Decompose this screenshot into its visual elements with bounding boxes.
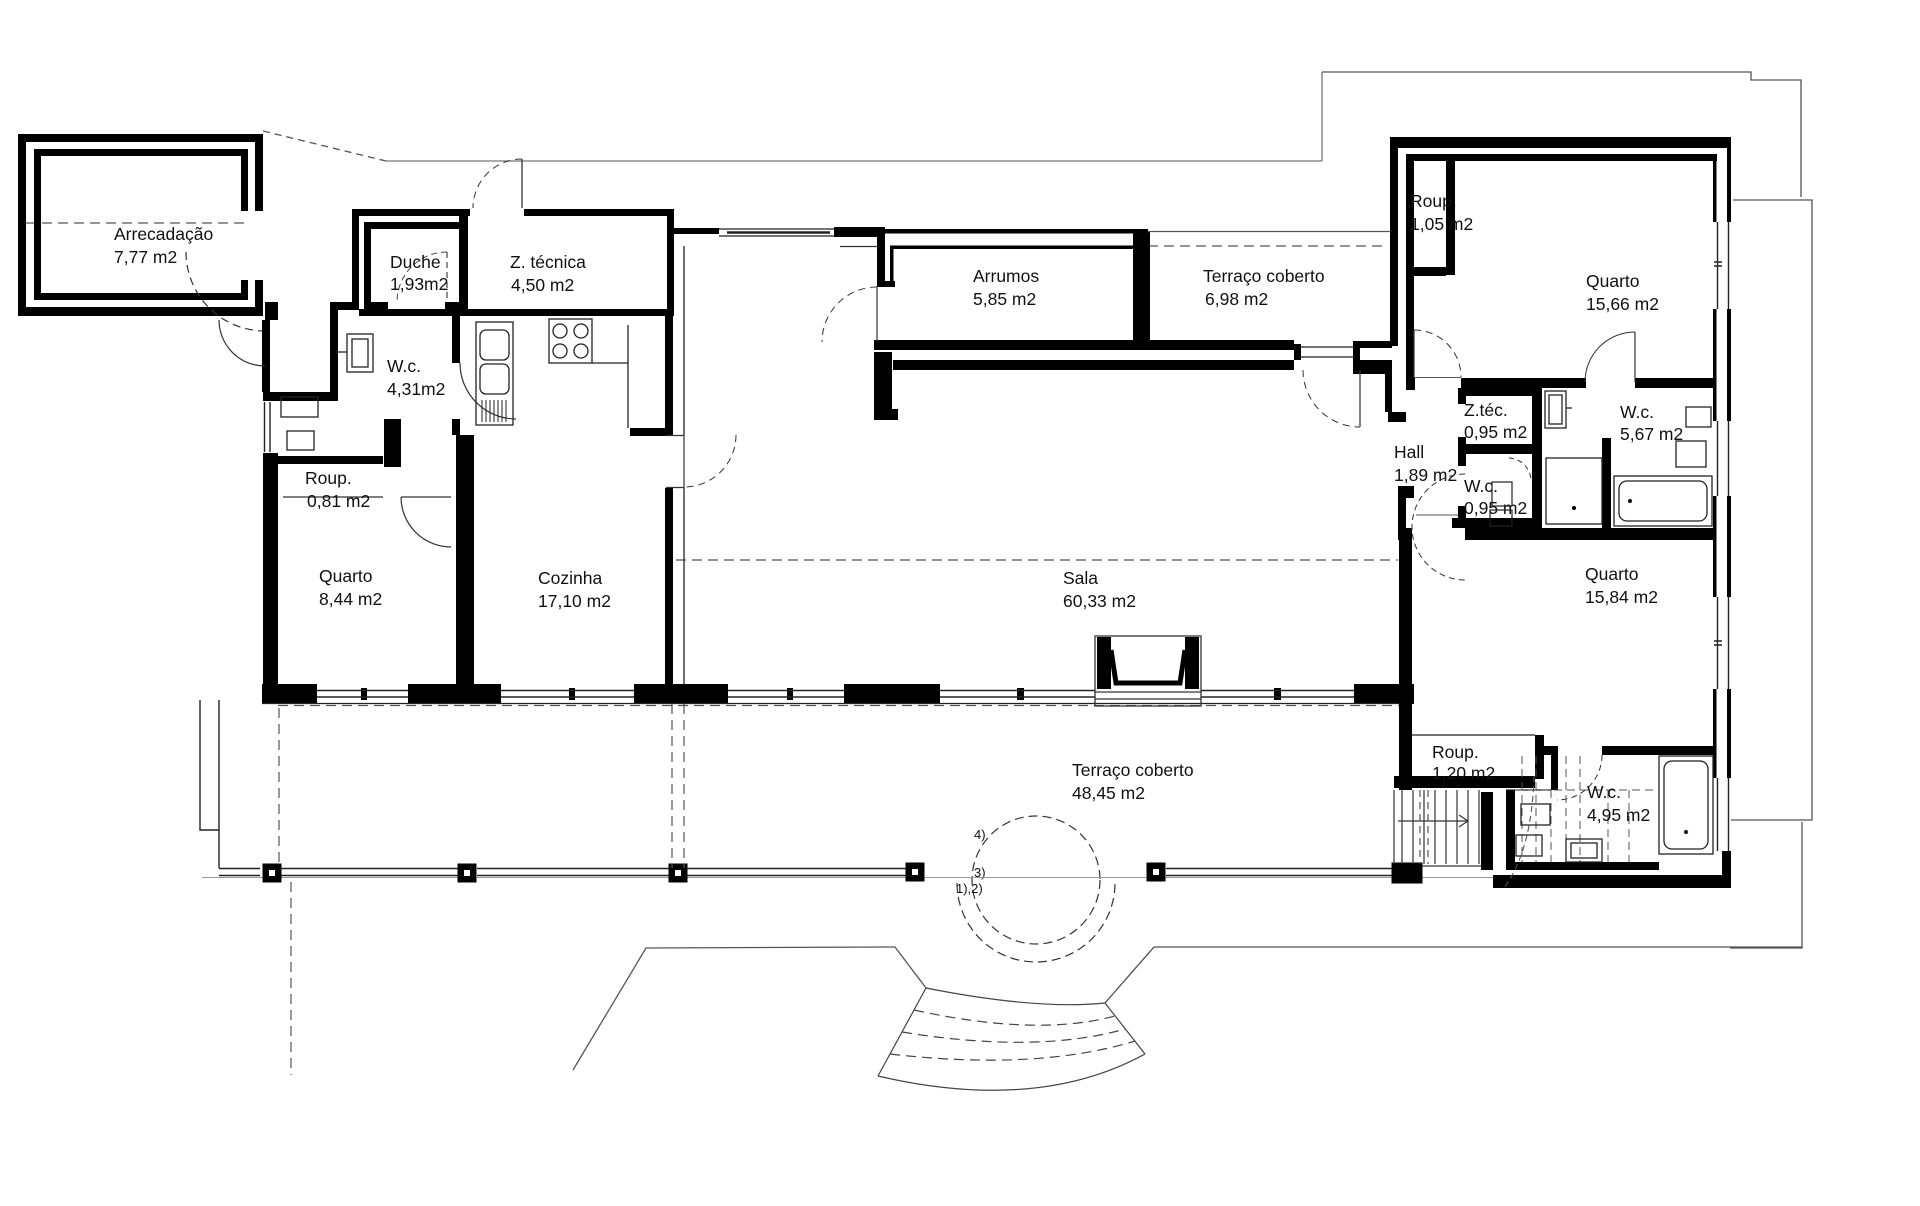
svg-text:Hall: Hall [1394, 442, 1424, 462]
svg-text:4,50 m2: 4,50 m2 [511, 275, 574, 295]
svg-text:48,45 m2: 48,45 m2 [1072, 783, 1145, 803]
svg-text:Duche: Duche [390, 252, 441, 272]
svg-text:Roup.: Roup. [305, 468, 352, 488]
svg-text:W.c.: W.c. [387, 356, 421, 376]
svg-text:7,77 m2: 7,77 m2 [114, 247, 177, 267]
svg-text:4,95 m2: 4,95 m2 [1587, 805, 1650, 825]
svg-text:17,10 m2: 17,10 m2 [538, 591, 611, 611]
svg-text:Z.téc.: Z.téc. [1464, 400, 1508, 420]
svg-text:Sala: Sala [1063, 568, 1098, 588]
svg-text:Terraço coberto: Terraço coberto [1072, 760, 1194, 780]
svg-text:6,98 m2: 6,98 m2 [1205, 289, 1268, 309]
svg-text:15,84 m2: 15,84 m2 [1585, 587, 1658, 607]
svg-text:Cozinha: Cozinha [538, 568, 602, 588]
svg-text:4): 4) [974, 827, 986, 842]
svg-text:1,89 m2: 1,89 m2 [1394, 465, 1457, 485]
svg-text:W.c.: W.c. [1620, 402, 1654, 422]
svg-text:Z. técnica: Z. técnica [510, 252, 586, 272]
svg-text:Arrecadação: Arrecadação [114, 224, 213, 244]
svg-text:60,33 m2: 60,33 m2 [1063, 591, 1136, 611]
svg-text:4,31m2: 4,31m2 [387, 379, 445, 399]
svg-text:W.c.: W.c. [1464, 476, 1498, 496]
svg-text:Roup.: Roup. [1410, 191, 1457, 211]
svg-text:1),2): 1),2) [956, 881, 983, 896]
svg-text:Terraço coberto: Terraço coberto [1203, 266, 1325, 286]
svg-text:15,66 m2: 15,66 m2 [1586, 294, 1659, 314]
svg-text:1,93m2: 1,93m2 [390, 274, 448, 294]
svg-text:Quarto: Quarto [319, 566, 373, 586]
svg-text:8,44 m2: 8,44 m2 [319, 589, 382, 609]
svg-text:0,95 m2: 0,95 m2 [1464, 498, 1527, 518]
svg-text:1,05 m2: 1,05 m2 [1410, 214, 1473, 234]
svg-text:W.c.: W.c. [1587, 782, 1621, 802]
svg-text:0,81 m2: 0,81 m2 [307, 491, 370, 511]
svg-text:5,85 m2: 5,85 m2 [973, 289, 1036, 309]
svg-text:1,20 m2: 1,20 m2 [1432, 763, 1495, 783]
svg-text:0,95 m2: 0,95 m2 [1464, 422, 1527, 442]
svg-text:Arrumos: Arrumos [973, 266, 1039, 286]
svg-text:Roup.: Roup. [1432, 742, 1479, 762]
svg-text:5,67 m2: 5,67 m2 [1620, 424, 1683, 444]
svg-text:Quarto: Quarto [1586, 271, 1640, 291]
svg-text:Quarto: Quarto [1585, 564, 1639, 584]
